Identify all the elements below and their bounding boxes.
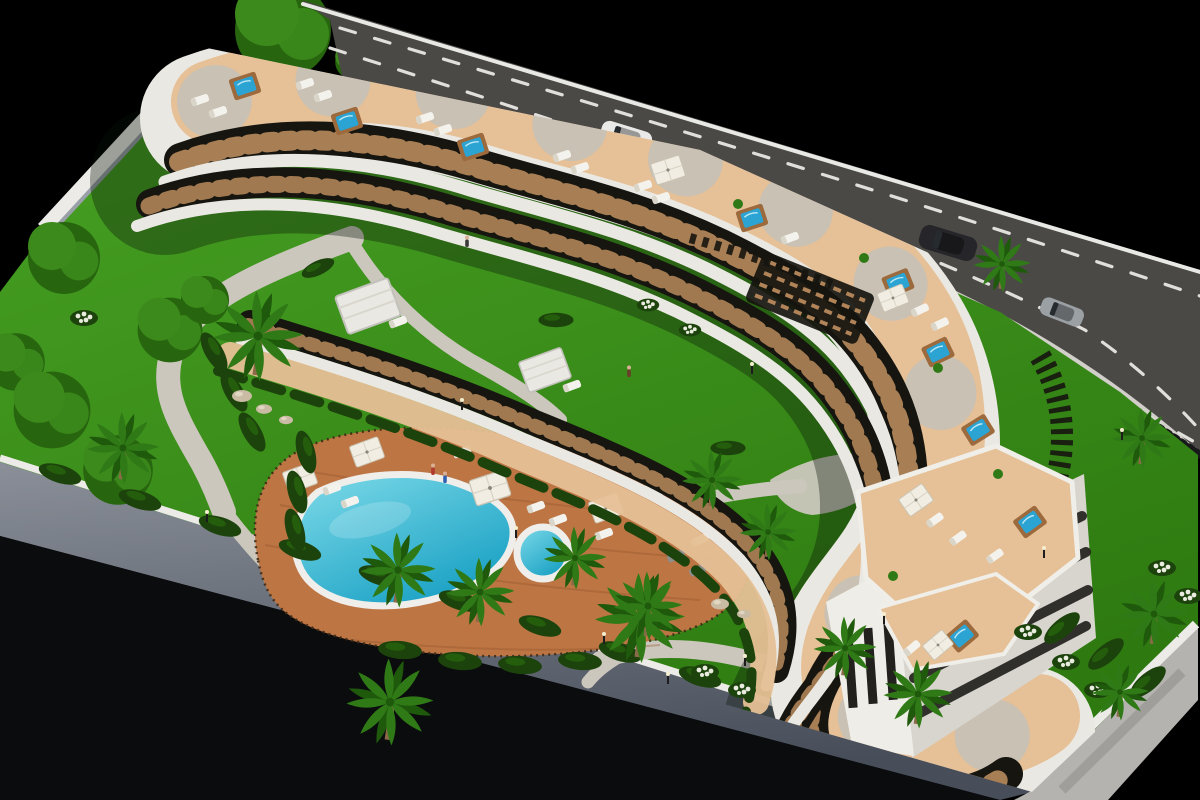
rock [737, 610, 751, 618]
flower-bed [679, 324, 701, 337]
flower-bed [70, 310, 98, 326]
flower-bed [1148, 560, 1176, 576]
roof-plant [859, 253, 869, 263]
tree [28, 222, 100, 294]
rock [711, 599, 729, 610]
roof-plant [993, 469, 1003, 479]
flower-bed [1052, 654, 1080, 670]
person [465, 236, 469, 248]
render-stage [0, 0, 1200, 800]
rock [279, 416, 293, 424]
flower-bed [691, 664, 719, 680]
rock [256, 404, 272, 414]
roof-plant [933, 363, 943, 373]
tree [14, 372, 91, 449]
hedge [710, 441, 745, 455]
flower-bed [1014, 624, 1042, 640]
flower-bed [637, 299, 659, 312]
person [627, 366, 631, 378]
aerial-render [0, 0, 1200, 800]
flower-bed [728, 682, 756, 698]
person [443, 472, 447, 484]
hedge [538, 313, 573, 327]
roof-plant [888, 571, 898, 581]
rock [232, 390, 252, 402]
person [431, 464, 435, 476]
roof-plant [733, 199, 743, 209]
tree [181, 276, 229, 324]
